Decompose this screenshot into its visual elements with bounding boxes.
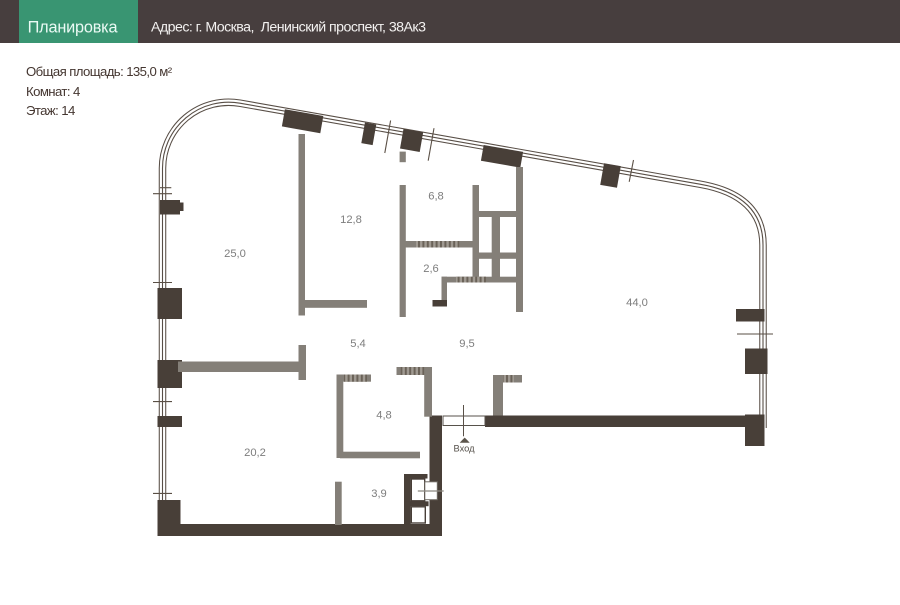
svg-text:2,6: 2,6 [423,263,439,275]
svg-text:6,8: 6,8 [428,191,444,203]
svg-text:4,8: 4,8 [376,410,392,422]
svg-text:12,8: 12,8 [340,214,362,226]
svg-text:Адрес: г. Москва, Ленинский п: Адрес: г. Москва, Ленинский проспект, 38… [151,20,426,36]
svg-text:44,0: 44,0 [626,297,648,309]
svg-text:25,0: 25,0 [224,248,246,260]
svg-text:Общая площадь: 135,0 м²: Общая площадь: 135,0 м² [26,64,173,79]
svg-text:9,5: 9,5 [459,338,475,350]
svg-text:20,2: 20,2 [244,447,266,459]
svg-text:Вход: Вход [453,444,475,454]
svg-text:3,9: 3,9 [371,488,387,500]
svg-text:5,4: 5,4 [350,338,366,350]
svg-text:Этаж: 14: Этаж: 14 [26,103,75,118]
svg-text:Планировка: Планировка [28,19,119,37]
svg-text:Комнат: 4: Комнат: 4 [26,84,80,99]
